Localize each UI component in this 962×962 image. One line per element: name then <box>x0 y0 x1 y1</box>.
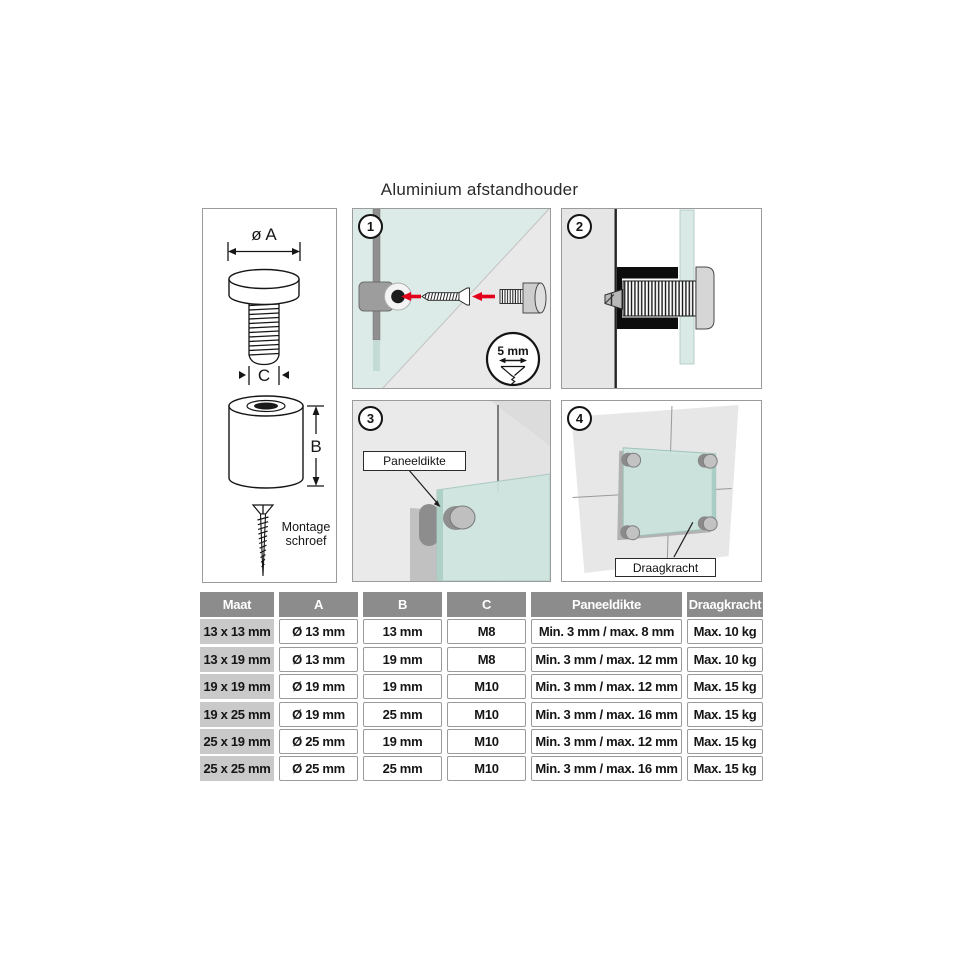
value-cell: Ø 19 mm <box>279 674 358 699</box>
size-cell: 25 x 25 mm <box>200 756 274 781</box>
step-panel-1: 5 mm 1 <box>352 208 551 389</box>
step-1-illustration: 5 mm <box>353 209 550 388</box>
size-cell: 19 x 19 mm <box>200 674 274 699</box>
dim-a-annotation <box>228 242 300 261</box>
standoff-screw-icon <box>229 270 299 365</box>
step-panel-2: 2 <box>561 208 762 389</box>
step-2-illustration <box>562 209 761 388</box>
load-capacity-callout: Draagkracht <box>615 558 716 577</box>
value-cell: Max. 15 kg <box>687 756 763 781</box>
value-cell: 25 mm <box>363 702 442 727</box>
spacer-barrel-icon <box>229 396 303 488</box>
col-header-paneeldikte: Paneeldikte <box>531 592 682 617</box>
value-cell: Min. 3 mm / max. 16 mm <box>531 702 682 727</box>
value-cell: Min. 3 mm / max. 12 mm <box>531 729 682 754</box>
panel-thickness-callout: Paneeldikte <box>363 451 466 471</box>
col-header-c: C <box>447 592 526 617</box>
dim-c-label: C <box>258 366 270 385</box>
col-header-maat: Maat <box>200 592 274 617</box>
spec-table: Maat A B C Paneeldikte Draagkracht 13 x … <box>200 592 763 781</box>
value-cell: Ø 13 mm <box>279 619 358 644</box>
value-cell: Max. 15 kg <box>687 702 763 727</box>
value-cell: Ø 19 mm <box>279 702 358 727</box>
page-title: Aluminium afstandhouder <box>196 180 763 200</box>
value-cell: 13 mm <box>363 619 442 644</box>
standoff-cap-icon <box>443 506 475 530</box>
step-number-badge: 2 <box>567 214 592 239</box>
value-cell: Max. 10 kg <box>687 647 763 672</box>
size-cell: 13 x 19 mm <box>200 647 274 672</box>
value-cell: M8 <box>447 619 526 644</box>
step-panel-3: Paneeldikte 3 <box>352 400 551 582</box>
dim-a-label: ø A <box>251 225 277 244</box>
drill-size-label: 5 mm <box>497 344 528 358</box>
value-cell: Ø 13 mm <box>279 647 358 672</box>
value-cell: 25 mm <box>363 756 442 781</box>
value-cell: M10 <box>447 674 526 699</box>
value-cell: M10 <box>447 729 526 754</box>
mounting-screw-label-line1: Montage <box>282 520 331 534</box>
col-header-draagkracht: Draagkracht <box>687 592 763 617</box>
value-cell: 19 mm <box>363 729 442 754</box>
step-number-badge: 3 <box>358 406 383 431</box>
step-3-illustration <box>353 401 550 581</box>
value-cell: 19 mm <box>363 647 442 672</box>
spacer-barrel-icon <box>419 504 439 546</box>
threaded-rod-icon <box>623 281 698 316</box>
product-diagram-panel: ø A C <box>202 208 337 583</box>
infographic: Aluminium afstandhouder ø A <box>0 0 962 962</box>
value-cell: Max. 15 kg <box>687 674 763 699</box>
size-cell: 19 x 25 mm <box>200 702 274 727</box>
value-cell: Ø 25 mm <box>279 729 358 754</box>
mounting-screw-icon <box>253 505 273 576</box>
value-cell: Min. 3 mm / max. 12 mm <box>531 674 682 699</box>
value-cell: Max. 10 kg <box>687 619 763 644</box>
value-cell: Ø 25 mm <box>279 756 358 781</box>
step-number-badge: 1 <box>358 214 383 239</box>
mounting-screw-label-line2: schroef <box>286 534 328 548</box>
step-panel-4: Draagkracht 4 <box>561 400 762 582</box>
value-cell: M8 <box>447 647 526 672</box>
drill-size-detail <box>487 333 539 385</box>
col-header-a: A <box>279 592 358 617</box>
size-cell: 13 x 13 mm <box>200 619 274 644</box>
value-cell: Min. 3 mm / max. 12 mm <box>531 647 682 672</box>
value-cell: Max. 15 kg <box>687 729 763 754</box>
step-4-illustration <box>562 401 761 581</box>
value-cell: Min. 3 mm / max. 8 mm <box>531 619 682 644</box>
dim-b-label: B <box>310 437 321 456</box>
size-cell: 25 x 19 mm <box>200 729 274 754</box>
value-cell: M10 <box>447 756 526 781</box>
step-number-badge: 4 <box>567 406 592 431</box>
standoff-cap-icon <box>696 267 714 329</box>
value-cell: M10 <box>447 702 526 727</box>
col-header-b: B <box>363 592 442 617</box>
product-diagram: ø A C <box>203 209 336 582</box>
value-cell: 19 mm <box>363 674 442 699</box>
value-cell: Min. 3 mm / max. 16 mm <box>531 756 682 781</box>
